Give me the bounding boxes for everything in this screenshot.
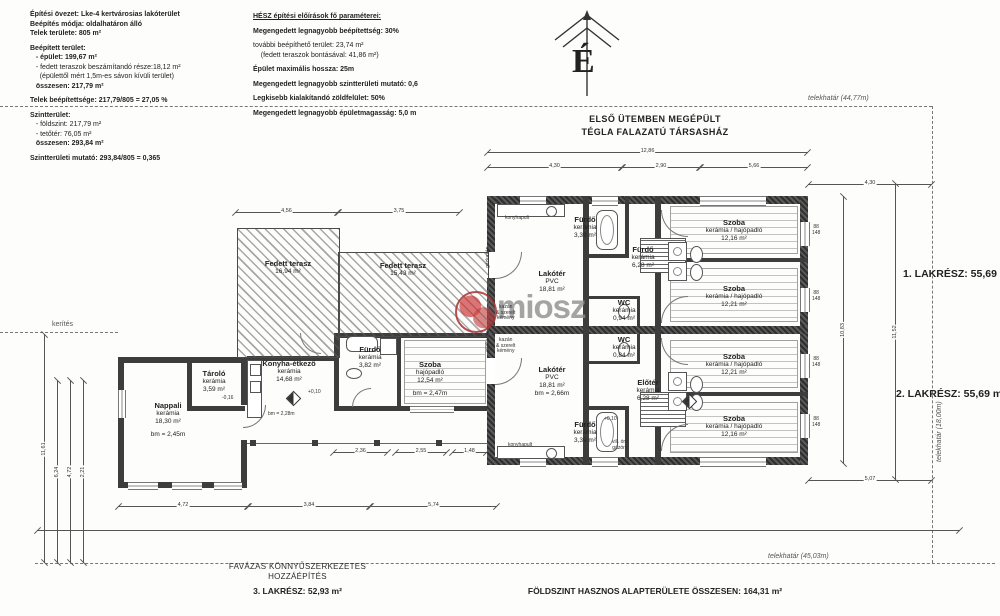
room-name: Lakótér — [535, 366, 570, 374]
window — [700, 196, 766, 206]
total-area-label: FÖLDSZINT HASZNOS ALAPTERÜLETE ÖSSZESEN:… — [470, 586, 840, 596]
room-label: Szobakerámia / hajópadló12,21 m² — [706, 285, 763, 309]
room-name: WC — [612, 336, 635, 344]
dimension-label: 2,21 — [80, 465, 86, 478]
room-name: Fürdő — [573, 421, 596, 429]
annotation-label: kazán & szerelt kémény — [496, 305, 515, 322]
room-label: Fürdőkerámia3,39 m² — [573, 216, 596, 240]
room-detail: bm = 2,47m — [413, 390, 448, 398]
door-arc — [661, 338, 688, 365]
annotation-label: konyhapult — [505, 216, 529, 222]
hesz-parameter-line: Megengedett legnagyobb szintterületi mut… — [253, 80, 418, 90]
phase1-heading-line1: ELSŐ ÜTEMBEN MEGÉPÜLT — [530, 113, 780, 126]
annotation-label: 88 148 — [812, 357, 820, 368]
phase1-heading: ELSŐ ÜTEMBEN MEGÉPÜLT TÉGLA FALAZATÚ TÁR… — [530, 113, 780, 139]
boundary-right-label: telekhatár (18,00m) — [936, 401, 943, 462]
site-data-line: Szintterület: — [30, 111, 181, 121]
window — [800, 288, 810, 312]
room-detail: kerámia — [636, 387, 659, 395]
room-detail: 3,39 m² — [573, 437, 596, 445]
room-detail: PVC — [538, 278, 565, 286]
annotation-label: konyhapult — [508, 443, 532, 449]
room-detail: 16,94 m² — [265, 268, 311, 276]
dimension-label: 2,36 — [354, 448, 367, 454]
room-detail: 12,21 m² — [706, 369, 763, 377]
fence-line — [0, 332, 118, 333]
dimension-label: 5,07 — [864, 476, 877, 482]
site-data-line: Szintterületi mutató: 293,84/805 = 0,365 — [30, 154, 181, 164]
washbasin — [690, 264, 703, 281]
room-label: Fedett terasz15,43 m² — [380, 262, 426, 278]
window — [592, 196, 618, 206]
room-name: Fürdő — [631, 246, 654, 254]
site-data-line: - földszint: 217,79 m² — [30, 120, 181, 130]
annotation-label: -0,16 — [222, 396, 233, 402]
room-detail: kerámia — [151, 410, 186, 418]
site-data-line: Beépített terület: — [30, 44, 181, 54]
room-detail: 3,39 m² — [573, 232, 596, 240]
unit-divider-wall — [487, 326, 808, 334]
dimension-label: 10,83 — [840, 322, 846, 338]
room-label: Fürdőkerámia3,82 m² — [358, 346, 381, 370]
room-label: WCkerámia0,84 m² — [612, 336, 635, 360]
kitchen-counter-addition — [247, 360, 262, 418]
fence-label: kerítés — [52, 321, 73, 328]
room-name: Szoba — [706, 353, 763, 361]
room-label: Fürdőkerámia3,39 m² — [573, 421, 596, 445]
room-name: Fedett terasz — [265, 260, 311, 268]
room-label: Szobahajópadló12,54 m²bm = 2,47m — [413, 361, 448, 398]
porch-post — [312, 440, 318, 446]
room-label: Fürdőkerámia6,28 m² — [631, 246, 654, 270]
site-data-line: Telek területe: 805 m² — [30, 29, 181, 39]
annotation-label: 88 148 — [812, 225, 820, 236]
room-detail: 12,54 m² — [413, 377, 448, 385]
dimension-label: 5,74 — [427, 502, 440, 508]
room-detail: kerámia / hajópadló — [706, 293, 763, 301]
dimension-line-h — [37, 530, 960, 531]
wc2-wall — [589, 361, 640, 364]
annotation-label: kazán & szerelt kémény — [496, 338, 515, 355]
hesz-parameters-block: HÉSZ építési előírások fő paraméterei:Me… — [253, 12, 418, 118]
site-data-line: - fedett teraszok beszámítandó része:18,… — [30, 63, 181, 73]
dimension-label: 2,55 — [415, 448, 428, 454]
site-data-line: Beépítés módja: oldalhatáron álló — [30, 20, 181, 30]
covered-terrace-left — [237, 228, 340, 358]
room-label: Szobakerámia / hajópadló12,16 m² — [706, 219, 763, 243]
room-detail: hajópadló — [413, 369, 448, 377]
window — [118, 390, 126, 418]
room-detail: 12,16 m² — [706, 235, 763, 243]
room-detail: 6,28 m² — [631, 262, 654, 270]
room-name: Fedett terasz — [380, 262, 426, 270]
dimension-label: 4,72 — [177, 502, 190, 508]
boundary-right-line — [932, 106, 933, 563]
site-data-line: összesen: 217,79 m² — [30, 82, 181, 92]
dimension-label: 5,66 — [748, 163, 761, 169]
room-name: Szoba — [706, 285, 763, 293]
bath1-wall-v — [625, 196, 629, 258]
watermark-logo — [455, 291, 497, 333]
porch-post — [374, 440, 380, 446]
window — [800, 414, 810, 438]
room-detail: 14,68 m² — [262, 376, 315, 384]
annotation-label: gázkazán — [486, 247, 492, 268]
site-data-line: - épület: 199,67 m² — [30, 53, 181, 63]
addition-caption-line2: HOZZÁÉPÍTÉS — [180, 572, 415, 582]
hesz-parameter-line: Megengedett legnagyobb épületmagasság: 5… — [253, 109, 418, 119]
annotation-label: bm = 2,28m — [268, 412, 295, 418]
hesz-parameter-line: Legkisebb kialakítandó zöldfelület: 50% — [253, 94, 418, 104]
window — [592, 457, 618, 467]
door-arc — [352, 388, 371, 407]
room-detail: kerámia — [573, 429, 596, 437]
room-detail: 15,43 m² — [380, 270, 426, 278]
room-label: Fedett terasz16,94 m² — [265, 260, 311, 276]
addition-caption: FAVÁZAS KÖNNYŰSZERKEZETES HOZZÁÉPÍTÉS — [180, 562, 415, 582]
room-detail: 0,84 m² — [612, 352, 635, 360]
boundary-bottom-label: telekhatár (45,03m) — [768, 553, 829, 560]
room-name: Szoba — [706, 415, 763, 423]
window — [800, 354, 810, 378]
room-detail: kerámia / hajópadló — [706, 361, 763, 369]
taralo-wall — [187, 357, 192, 411]
room-detail: kerámia / hajópadló — [706, 227, 763, 235]
room-detail: 18,30 m² — [151, 418, 186, 426]
annotation-label: gázkazán — [486, 331, 492, 352]
dimension-label: 4,30 — [864, 180, 877, 186]
compass-letter: É — [572, 43, 595, 80]
dimension-label: 11,61 — [41, 441, 47, 456]
room-detail: 18,81 m² — [538, 286, 565, 294]
room-name: Tároló — [202, 370, 225, 378]
hesz-parameter-line: további beépíthető terület: 23,74 m² — [253, 41, 418, 51]
room-detail: PVC — [535, 374, 570, 382]
dimension-label: 2,90 — [655, 163, 668, 169]
addition-wall — [241, 440, 247, 488]
wc2-wall-v — [637, 334, 640, 364]
annotation-label: 88 148 — [812, 291, 820, 302]
addition-wall — [118, 357, 247, 363]
room-detail: 3,59 m² — [202, 386, 225, 394]
dimension-label: 4,72 — [67, 465, 73, 478]
wc1-wall-v — [637, 296, 640, 326]
hesz-parameter-line: HÉSZ építési előírások fő paraméterei: — [253, 12, 418, 22]
room-detail: 0,94 m² — [612, 315, 635, 323]
window — [214, 482, 242, 490]
room-label: Szobakerámia / hajópadló12,16 m² — [706, 415, 763, 439]
room-name: Lakótér — [538, 270, 565, 278]
dimension-label: 11,52 — [892, 324, 898, 339]
room-label: LakótérPVC18,81 m²bm = 2,66m — [535, 366, 570, 398]
room-name: Konyha-étkező — [262, 360, 315, 368]
washbasin — [690, 376, 703, 393]
room-label: LakótérPVC18,81 m² — [538, 270, 565, 294]
level-marker — [286, 391, 302, 407]
hesz-parameter-line: (fedett teraszok bontásával: 41,86 m²) — [253, 51, 418, 61]
annotation-label: vill. óra gázóra — [612, 440, 628, 451]
door-arc-entry1 — [495, 252, 522, 279]
dimension-label: 6,24 — [54, 465, 60, 478]
dimension-label: 4,30 — [548, 163, 561, 169]
room-detail: bm = 2,66m — [535, 390, 570, 398]
shower-addition — [380, 338, 397, 355]
room-detail: bm = 2,45m — [151, 431, 186, 439]
window — [172, 482, 202, 490]
room-name: Nappali — [151, 402, 186, 410]
boundary-bottom-line — [35, 563, 995, 564]
unit1-area-label: 1. LAKRÉSZ: 55,69 m² — [903, 268, 1000, 280]
shower-tray — [668, 262, 687, 281]
window — [700, 457, 766, 467]
szoba5-wall — [397, 333, 401, 411]
room-detail: kerámia — [612, 344, 635, 352]
room-name: Szoba — [413, 361, 448, 369]
annotation-label: +0,10 — [604, 417, 617, 423]
room-detail: kerámia — [358, 354, 381, 362]
addition-caption-line1: FAVÁZAS KÖNNYŰSZERKEZETES — [180, 562, 415, 572]
room-label: Tárolókerámia3,59 m² — [202, 370, 225, 394]
room-label: Konyha-étkezőkerámia14,68 m² — [262, 360, 315, 384]
dimension-label: 12,86 — [640, 148, 656, 154]
site-data-line: - tetőtér: 76,05 m² — [30, 130, 181, 140]
annotation-label: 88 148 — [812, 417, 820, 428]
room-detail: 12,16 m² — [706, 431, 763, 439]
site-data-line: Építési övezet: Lke-4 kertvárosias lakót… — [30, 10, 181, 20]
hesz-parameter-line: Megengedett legnagyobb beépítettség: 30% — [253, 27, 418, 37]
room-label: WCkerámia0,94 m² — [612, 299, 635, 323]
porch-post — [436, 440, 442, 446]
room-name: WC — [612, 299, 635, 307]
taralo-wall — [187, 406, 245, 411]
bathtub-unit1 — [596, 210, 618, 250]
room-name: Előtér — [636, 379, 659, 387]
floor-plan-canvas: telekhatár (44,77m) telekhatár (18,00m) … — [0, 0, 1000, 616]
porch-post — [250, 440, 256, 446]
dimension-label: 3,75 — [393, 208, 406, 214]
room-name: Szoba — [706, 219, 763, 227]
bath2-wall — [589, 406, 629, 410]
room-detail: 3,82 m² — [358, 362, 381, 370]
phase1-heading-line2: TÉGLA FALAZATÚ TÁRSASHÁZ — [530, 126, 780, 139]
room-detail: kerámia — [573, 224, 596, 232]
unit2-area-label: 2. LAKRÉSZ: 55,69 m² — [896, 388, 1000, 400]
site-data-block: Építési övezet: Lke-4 kertvárosias lakót… — [30, 10, 181, 163]
dimension-label: 3,84 — [303, 502, 316, 508]
room-name: Fürdő — [573, 216, 596, 224]
bath1-wall — [589, 254, 629, 258]
room-name: Fürdő — [358, 346, 381, 354]
porch-edge-line — [247, 443, 487, 444]
room-detail: kerámia — [631, 254, 654, 262]
dimension-label: 1,48 — [463, 448, 476, 454]
washbasin — [690, 246, 703, 263]
site-data-line: (épülettől mért 1,5m-es sávon kívüli ter… — [30, 72, 181, 82]
shower-tray — [668, 372, 687, 391]
window — [128, 482, 158, 490]
annotation-label: +0,10 — [308, 390, 321, 396]
room-detail: 12,21 m² — [706, 301, 763, 309]
room-detail: 18,81 m² — [535, 382, 570, 390]
door-arc — [661, 296, 688, 323]
window — [410, 406, 454, 413]
room-label: Nappalikerámia18,30 m²bm = 2,45m — [151, 402, 186, 439]
site-data-line: Telek beépítettsége: 217,79/805 = 27,05 … — [30, 96, 181, 106]
boundary-top-label: telekhatár (44,77m) — [808, 95, 869, 102]
window — [800, 222, 810, 246]
room-label: Előtérkerámia6,28 m² — [636, 379, 659, 403]
unit3-area-label: 3. LAKRÉSZ: 52,93 m² — [215, 586, 380, 596]
shower-tray — [668, 242, 687, 261]
room-label: Szobakerámia / hajópadló12,21 m² — [706, 353, 763, 377]
room-detail: kerámia / hajópadló — [706, 423, 763, 431]
entry-door-unit2 — [487, 358, 495, 384]
door-arc-entry2 — [495, 358, 522, 385]
site-data-line: összesen: 293,84 m² — [30, 139, 181, 149]
room-detail: kerámia — [202, 378, 225, 386]
room-detail: kerámia — [612, 307, 635, 315]
dimension-label: 4,56 — [280, 208, 293, 214]
addition-wall — [118, 357, 124, 488]
door-arc — [661, 210, 688, 237]
hesz-parameter-line: Épület maximális hossza: 25m — [253, 65, 418, 75]
room-detail: kerámia — [262, 368, 315, 376]
room-detail: 6,28 m² — [636, 395, 659, 403]
north-compass-icon: É — [545, 2, 629, 100]
door-arc — [661, 424, 688, 451]
